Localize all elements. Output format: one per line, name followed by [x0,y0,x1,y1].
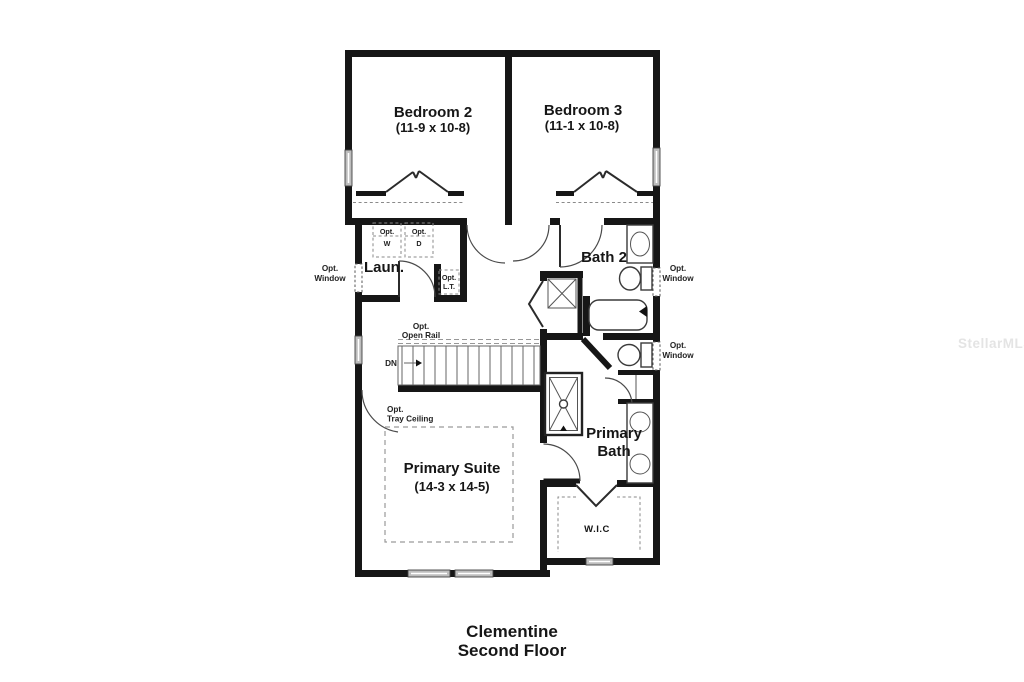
label-opt-lt-1: Opt. [442,273,456,282]
label-opt-tray-1: Opt. [387,405,403,414]
stairs-outline [398,346,540,385]
label-dn: DN [385,359,397,368]
floorplan-page: Bedroom 2 (11-9 x 10-8) Bedroom 3 (11-1 … [0,0,1024,682]
opt-window-pbath [653,342,660,370]
bath2-toilet-bowl [620,267,641,290]
plan-floor: Second Floor [458,641,567,660]
door-suite-bath-arc [544,444,581,481]
bath2-toilet-tank [641,267,652,290]
door-bed2-closet-bifold [386,171,448,192]
stairs-dn-arrowhead [416,360,422,367]
label-opt-washer-2: W [384,239,391,248]
stairs [398,340,540,386]
floorplan-canvas: Bedroom 2 (11-9 x 10-8) Bedroom 3 (11-1 … [0,0,1024,682]
pbath-toilet-bowl [618,345,640,366]
label-bedroom3-dims: (11-1 x 10-8) [545,118,619,133]
pbath-vanity [627,403,653,483]
label-wic: W.I.C [584,524,610,535]
label-opt-tray-2: Tray Ceiling [387,415,433,424]
door-bed3-closet-bifold [574,171,637,192]
door-laundry-arc [399,261,435,297]
label-opt-window-right1-1: Opt. [670,264,686,273]
label-primary-bath-1: Primary [586,425,643,442]
opt-window-bath2 [653,268,660,296]
label-opt-washer-1: Opt. [380,227,394,236]
caption: Clementine Second Floor [458,622,567,660]
label-bedroom2-dims: (11-9 x 10-8) [396,120,470,135]
opt-window-laundry [355,264,362,292]
label-bedroom3: Bedroom 3 [544,102,622,119]
label-primary-suite: Primary Suite [404,460,501,477]
watermark: StellarMLS [958,336,1024,351]
label-primary-bath-2: Bath [597,443,630,460]
label-opt-dryer-1: Opt. [412,227,426,236]
door-linen-bifold [529,281,543,327]
label-opt-lt-2: L.T. [443,282,455,291]
label-opt-window-right1-2: Window [662,274,694,283]
label-opt-window-right2-1: Opt. [670,341,686,350]
door-bedroom2-arc [467,225,505,263]
label-laundry: Laun. [364,259,404,276]
stairs-open-rail [398,340,540,344]
pbath-toilet-tank [641,343,652,367]
label-primary-suite-dims: (14-3 x 14-5) [414,479,489,494]
label-bedroom2: Bedroom 2 [394,104,472,121]
stairs-treads [402,346,534,385]
door-wic-double [576,485,617,506]
label-opt-window-right2-2: Window [662,351,694,360]
linen-shelf-x [548,279,576,308]
wall-pbath-entry-diagonal [583,339,610,368]
label-bath2: Bath 2 [581,249,627,266]
pbath-shower-drain [560,400,568,408]
label-opt-open-rail-1: Opt. [413,322,429,331]
label-opt-open-rail-2: Open Rail [402,331,440,340]
label-opt-window-left-1: Opt. [322,264,338,273]
label-opt-dryer-2: D [416,239,421,248]
plan-name: Clementine [466,622,558,641]
bath2-tub [589,300,647,330]
label-opt-window-left-2: Window [314,274,346,283]
door-bedroom3-arc [513,225,549,261]
